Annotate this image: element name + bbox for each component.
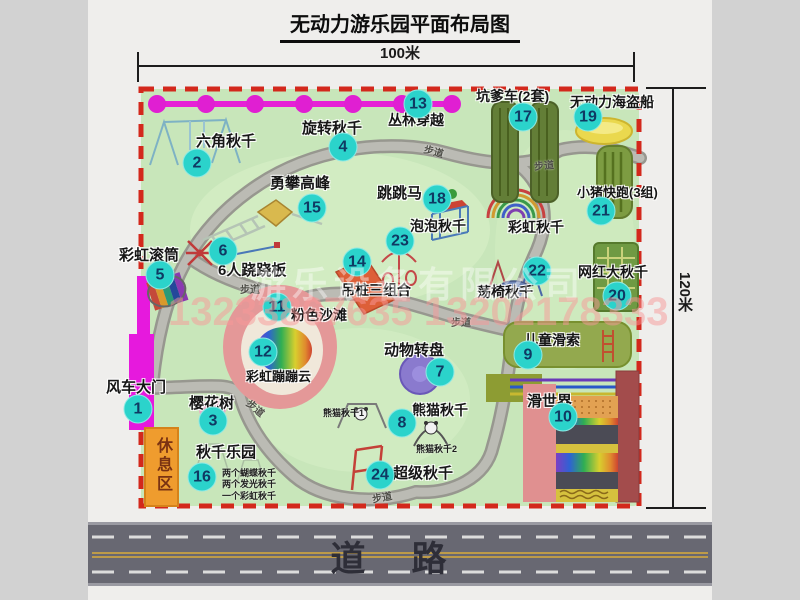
label-jumping-horse: 跳跳马 [377,186,422,202]
badge-swing-park: 16 [188,463,217,492]
label-big-swing: 网红大秋千 [578,265,648,280]
badge-piggy-run: 21 [587,197,616,226]
badge-animal-carousel: 7 [426,358,455,387]
dimension-height-label: 120米 [674,272,695,312]
label-rainbow-swing: 彩虹秋千 [508,220,564,235]
badge-cherry-tree: 3 [199,407,228,436]
badge-windmill-gate: 1 [124,395,153,424]
badge-super-swing: 24 [366,461,395,490]
label-panda-swing-1: 熊猫秋千1 [323,406,364,419]
badge-slide-world: 10 [549,403,578,432]
label-rainbow-bouncing-cloud: 彩虹蹦蹦云 [246,370,311,384]
label-bubble-swing: 泡泡秋千 [410,219,466,234]
rest-area-label: 休息区 [150,437,174,494]
badge-brave-climb: 15 [298,194,327,223]
badge-panda-swing: 8 [388,409,417,438]
label-pit-car: 坑爹车(2套) [476,89,549,104]
swing-park-note-3: 一个彩虹秋千 [222,491,276,502]
label-piggy-run: 小猪快跑(3组) [577,186,658,200]
label-super-swing: 超级秋千 [393,466,453,482]
swing-park-note-1: 两个蝴蝶秋千 [222,468,276,479]
label-panda-swing: 熊猫秋千 [412,403,468,418]
swing-park-note-2: 两个发光秋千 [222,479,276,490]
title-block: 无动力游乐园平面布局图 [200,8,600,43]
badge-bubble-swing: 23 [386,227,415,256]
badge-rainbow-roller: 5 [146,261,175,290]
watermark-phone: 13233867635 13202178333 [168,290,669,335]
label-windmill-gate: 风车大门 [106,380,166,396]
label-rotating-swing: 旋转秋千 [302,121,362,137]
swing-park-notes: 两个蝴蝶秋千 两个发光秋千 一个彩虹秋千 [222,468,276,502]
road-label: 道路 [88,531,712,582]
label-panda-swing-2: 熊猫秋千2 [416,442,457,455]
badge-hexagon-swing: 2 [183,149,212,178]
label-hexagon-swing: 六角秋千 [196,134,256,150]
badge-kids-zipline: 9 [514,341,543,370]
label-brave-climb: 勇攀高峰 [270,176,330,192]
walkway-label-2: 步道 [533,156,554,173]
badge-pit-car: 17 [509,103,538,132]
badge-rotating-swing: 4 [329,133,358,162]
badge-pirate-ship: 19 [574,103,603,132]
page-title: 无动力游乐园平面布局图 [280,8,520,43]
label-animal-carousel: 动物转盘 [384,343,444,359]
park-plan-canvas: 无动力游乐园平面布局图 100米 120米 道路 休息区 风车大门 六角秋千 樱… [0,0,800,600]
dimension-width-label: 100米 [340,42,460,63]
badge-jumping-horse: 18 [423,185,452,214]
label-rainbow-roller: 彩虹滚筒 [119,248,179,264]
badge-six-person-seesaw: 6 [209,237,238,266]
badge-jungle-crossing: 13 [404,90,433,119]
badge-rainbow-bouncing-cloud: 12 [249,338,278,367]
label-swing-park: 秋千乐园 [196,445,256,461]
